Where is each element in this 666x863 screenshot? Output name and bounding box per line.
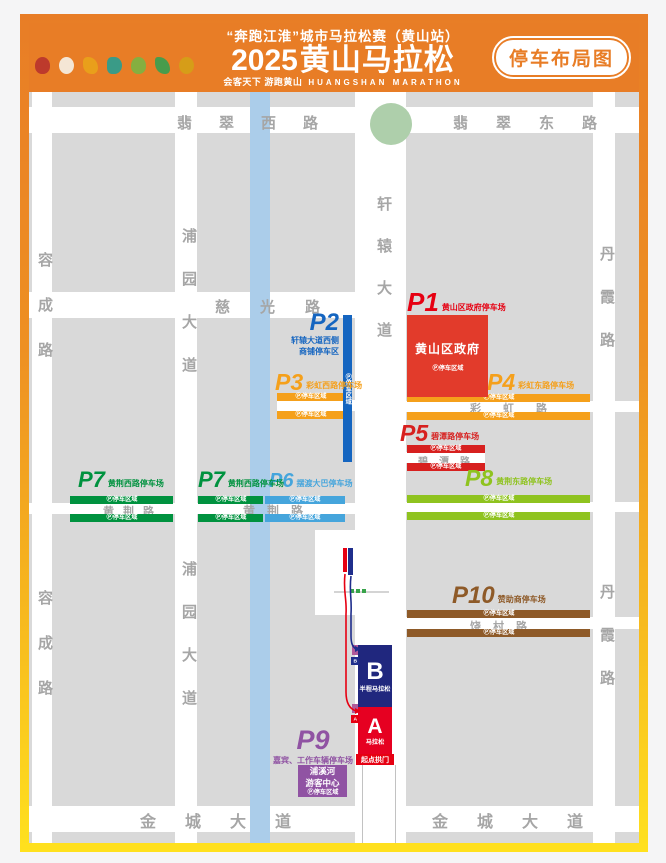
sponsor-logo-1-icon <box>35 57 50 74</box>
p2-id: P2 <box>265 313 339 332</box>
p6-name: 摆渡大巴停车场 <box>296 478 352 489</box>
zone-label: Ⓟ停车区域 <box>483 631 514 636</box>
sponsor-logo-2-icon <box>59 57 74 74</box>
event-year: 2025 <box>231 44 298 77</box>
title-block: “奔跑江淮”城市马拉松赛（黄山站） 2025黄山马拉松 会客天下 游跑黄山 HU… <box>202 30 484 87</box>
p1-id: P1 <box>407 292 439 313</box>
parking-bar-p7b-south: Ⓟ停车区域 <box>198 514 263 522</box>
parking-bar-p8-north: Ⓟ停车区域 <box>407 495 590 503</box>
block-a-label: 马拉松 <box>366 741 385 746</box>
p7-name: 黄荆西路停车场 <box>108 478 164 489</box>
p2-label: P2 轩辕大道西侧 商铺停车区 <box>265 313 339 357</box>
p4-name: 彩虹东路停车场 <box>518 380 574 391</box>
zone-label: Ⓟ停车区域 <box>106 498 137 503</box>
p3-label: P3 彩虹西路停车场 <box>275 373 362 391</box>
parking-bar-p10-north: Ⓟ停车区域 <box>407 610 590 618</box>
visitor-center-line1: 浦溪河 <box>310 765 336 777</box>
start-arch-label: 起点拱门 <box>356 754 394 765</box>
zone-label: Ⓟ停车区域 <box>483 414 514 419</box>
zone-label: Ⓟ停车区域 <box>483 612 514 617</box>
visitor-center-block: 浦溪河 游客中心 Ⓟ停车区域 <box>298 765 347 797</box>
half-marathon-route-tag <box>348 548 353 575</box>
block-a-letter: A <box>367 715 382 739</box>
map-type-badge-label: 停车布局图 <box>496 40 627 75</box>
marathon-route-tag <box>343 548 347 572</box>
road-label-feicui-west: 翡翠西路 <box>177 112 345 133</box>
visitor-center-line2: 游客中心 <box>305 777 339 789</box>
zone-label: Ⓟ停车区域 <box>483 514 514 519</box>
sponsor-logo-3-icon <box>83 57 98 74</box>
event-title-top: “奔跑江淮”城市马拉松赛（黄山站） <box>202 30 484 44</box>
road-label-danxia-north: 丹霞路 <box>596 246 617 375</box>
sponsor-logo-7-icon <box>179 57 194 74</box>
slogan-cn: 会客天下 游跑黄山 <box>223 77 302 87</box>
road-label-jincheng-west: 金城大道 <box>140 808 320 832</box>
p7-west-label: P7 黄荆西路停车场 <box>78 471 164 489</box>
zone-label: Ⓟ停车区域 <box>290 498 321 503</box>
p5-label: P5 碧潭路停车场 <box>400 424 479 442</box>
event-slogan: 会客天下 游跑黄山 HUANGSHAN MARATHON <box>202 78 484 87</box>
p7-id: P7 <box>78 471 105 489</box>
zone-label: Ⓟ停车区域 <box>432 366 463 371</box>
p7-name: 黄荆西路停车场 <box>228 478 284 489</box>
parking-bar-p4-south: Ⓟ停车区域 <box>407 412 590 420</box>
poster-header: “奔跑江淮”城市马拉松赛（黄山站） 2025黄山马拉松 会客天下 游跑黄山 HU… <box>29 23 639 92</box>
sponsor-logo-4-icon <box>107 57 122 74</box>
parking-bar-p10-south: Ⓟ停车区域 <box>407 629 590 637</box>
p8-label: P8 黄荆东路停车场 <box>465 469 552 487</box>
parking-bar-p3-south: Ⓟ停车区域 <box>277 411 345 419</box>
parking-bar-p6-north: Ⓟ停车区域 <box>265 496 345 504</box>
p10-id: P10 <box>452 586 495 605</box>
parking-bar-p7a-north: Ⓟ停车区域 <box>70 496 173 504</box>
road-label-danxia-south: 丹霞路 <box>596 584 617 713</box>
zone-label: Ⓟ停车区域 <box>307 791 338 796</box>
road-label-puyuan-north: 浦园大道 <box>178 228 199 400</box>
block-b-letter: B <box>366 658 383 686</box>
p7-id: P7 <box>198 471 225 489</box>
roundabout <box>370 103 412 145</box>
p5-id: P5 <box>400 424 428 442</box>
b-entry-marker: B <box>351 657 359 665</box>
b-entry-letter: B <box>353 658 357 664</box>
start-arch-text: 起点拱门 <box>361 754 389 764</box>
p9-name: 嘉宾、工作车辆停车场 <box>263 755 363 766</box>
p3-id: P3 <box>275 373 303 391</box>
government-name: 黄山区政府 <box>415 340 480 357</box>
sponsor-logos <box>35 57 194 74</box>
road-rongcheng <box>32 92 52 843</box>
p4-id: P4 <box>487 373 515 391</box>
p2-name-line1: 轩辕大道西侧 <box>265 335 339 346</box>
p9-label: P9 嘉宾、工作车辆停车场 <box>263 730 363 766</box>
parking-bar-p8-south: Ⓟ停车区域 <box>407 512 590 520</box>
a-entry-marker: A <box>351 715 359 723</box>
zone-label: Ⓟ停车区域 <box>296 395 327 400</box>
poster: “奔跑江淮”城市马拉松赛（黄山站） 2025黄山马拉松 会客天下 游跑黄山 HU… <box>20 14 648 852</box>
zone-label: Ⓟ停车区域 <box>296 413 327 418</box>
road-danxia <box>593 92 615 843</box>
parking-bar-p5-north: Ⓟ停车区域 <box>407 445 485 453</box>
zone-label: Ⓟ停车区域 <box>106 516 137 521</box>
parking-bar-p6-south: Ⓟ停车区域 <box>265 514 345 522</box>
event-title-main: 2025黄山马拉松 <box>202 45 484 77</box>
zone-label: Ⓟ停车区域 <box>215 498 246 503</box>
start-block-b: B 半程马拉松 <box>358 645 392 707</box>
block-b-label: 半程马拉松 <box>360 688 391 693</box>
zone-label: Ⓟ停车区域 <box>431 447 462 452</box>
p3-name: 彩虹西路停车场 <box>306 380 362 391</box>
p4-label: P4 彩虹东路停车场 <box>487 373 574 391</box>
p10-name: 赞助商停车场 <box>498 594 546 605</box>
p2-name-line2: 商铺停车区 <box>265 346 339 357</box>
zone-label: Ⓟ停车区域 <box>215 516 246 521</box>
page: “奔跑江淮”城市马拉松赛（黄山站） 2025黄山马拉松 会客天下 游跑黄山 HU… <box>0 0 666 863</box>
zone-label: Ⓟ停车区域 <box>290 516 321 521</box>
parking-bar-p7a-south: Ⓟ停车区域 <box>70 514 173 522</box>
parking-bar-p7b-north: Ⓟ停车区域 <box>198 496 263 504</box>
road-label-rongcheng-south: 容成路 <box>34 590 55 725</box>
road-huangjing-east <box>406 502 639 512</box>
slogan-en: HUANGSHAN MARATHON <box>308 78 462 87</box>
government-building: 黄山区政府 Ⓟ停车区域 <box>407 315 488 397</box>
map-type-badge: 停车布局图 <box>492 36 631 79</box>
start-plaza <box>315 530 406 615</box>
p10-label: P10 赞助商停车场 <box>452 586 546 605</box>
start-block-a: A 马拉松 <box>358 707 392 755</box>
road-label-jincheng-east: 金城大道 <box>432 808 612 832</box>
road-label-xuanyuan: 轩辕大道 <box>373 196 394 364</box>
zone-label: Ⓟ停车区域 <box>431 465 462 470</box>
corridor-edge-left <box>362 765 363 843</box>
p9-id: P9 <box>263 730 363 752</box>
sponsor-logo-5-icon <box>131 57 146 74</box>
road-label-puyuan-south: 浦园大道 <box>178 561 199 733</box>
p1-label: P1 黄山区政府停车场 <box>407 292 506 313</box>
parking-map: 翡翠西路 翡翠东路 容成路 容成路 浦园大道 浦园大道 轩辕大道 慈光路 丹霞路… <box>29 92 639 843</box>
p5-name: 碧潭路停车场 <box>431 431 479 442</box>
a-entry-stripe <box>352 704 358 713</box>
p8-id: P8 <box>465 469 493 487</box>
road-label-feicui-east: 翡翠东路 <box>453 112 625 133</box>
p1-name: 黄山区政府停车场 <box>442 302 506 313</box>
corridor-edge-right <box>395 765 396 843</box>
p8-name: 黄荆东路停车场 <box>496 476 552 487</box>
road-label-rongcheng-north: 容成路 <box>34 252 55 387</box>
event-name: 黄山马拉松 <box>300 44 455 77</box>
a-entry-letter: A <box>353 716 357 722</box>
sponsor-logo-6-icon <box>155 57 170 74</box>
p7-mid-label: P7 黄荆西路停车场 <box>198 471 284 489</box>
b-entry-stripe <box>352 645 358 655</box>
zone-label: Ⓟ停车区域 <box>483 497 514 502</box>
